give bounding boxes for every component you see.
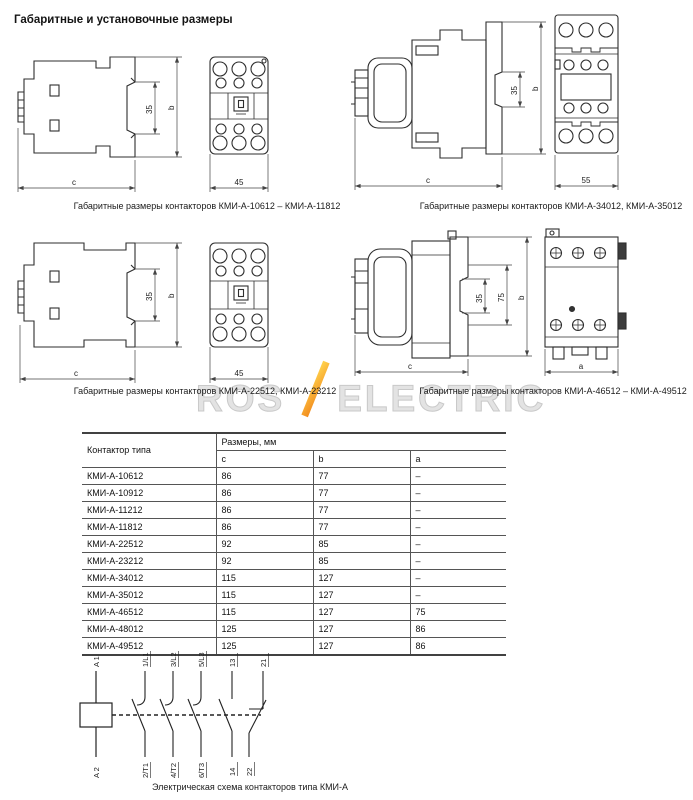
cell-c: 86 (216, 519, 313, 536)
col-header-c: c (216, 451, 313, 468)
drawing-22512-23212: 35 b c 45 (14, 233, 344, 400)
col-header-type: Контактор типа (82, 433, 216, 468)
dim-height: b (167, 293, 176, 298)
dimension-labels: 35 b c 45 (74, 292, 244, 378)
dim-height: b (517, 295, 526, 300)
drawing-caption: Габаритные размеры контакторов КМИ-А-465… (400, 386, 693, 396)
electrical-schematic: A 1 A 2 1/L1 3/L2 5/L3 13 21 2/Т1 4/Т2 6… (58, 645, 348, 785)
cell-c: 92 (216, 536, 313, 553)
cell-c: 86 (216, 502, 313, 519)
cell-c: 92 (216, 553, 313, 570)
label-aux-no-bottom: 14 (228, 768, 237, 776)
col-header-b: b (313, 451, 410, 468)
catalog-page: ROS ELECTRIC Габаритные и установочные р… (0, 0, 693, 800)
dim-depth: c (74, 369, 78, 378)
cell-a: 86 (410, 638, 506, 656)
schematic-caption: Электрическая схема контакторов типа КМИ… (98, 782, 402, 792)
cell-type: КМИ-А-11212 (82, 502, 216, 519)
dim-height: b (167, 105, 176, 110)
label-a1: A 1 (92, 656, 101, 667)
label-a2: A 2 (92, 767, 101, 778)
cell-c: 115 (216, 604, 313, 621)
drawing-10612-11812: 35 b c 45 (14, 48, 344, 206)
label-pole2-top: 3/L2 (169, 652, 178, 667)
dim-holes: 75 (497, 293, 506, 302)
label-pole1-top: 1/L1 (141, 652, 150, 667)
drawing-caption: Габаритные размеры контакторов КМИ-А-340… (398, 201, 693, 211)
cell-type: КМИ-А-48012 (82, 621, 216, 638)
label-pole3-top: 5/L3 (197, 652, 206, 667)
label-pole3-bottom: 6/Т3 (197, 763, 206, 778)
coil (80, 671, 112, 757)
dim-rail: 35 (145, 292, 154, 301)
dimensions (18, 57, 268, 192)
dim-width: 55 (582, 176, 591, 185)
drawing-46512-49512: 35 75 b c a (350, 225, 693, 400)
table-row: КМИ-А-109128677– (82, 485, 506, 502)
label-pole1-bottom: 2/Т1 (141, 763, 150, 778)
cell-type: КМИ-А-22512 (82, 536, 216, 553)
dim-depth: c (72, 178, 76, 187)
dim-depth: c (408, 362, 412, 371)
cell-type: КМИ-А-10912 (82, 485, 216, 502)
label-aux-nc-bottom: 22 (245, 768, 254, 776)
cell-type: КМИ-А-11812 (82, 519, 216, 536)
table-row: КМИ-А-4801212512786 (82, 621, 506, 638)
table-row: КМИ-А-35012115127– (82, 587, 506, 604)
cell-a: – (410, 485, 506, 502)
cell-b: 85 (313, 536, 410, 553)
cell-c: 86 (216, 485, 313, 502)
cell-type: КМИ-А-23212 (82, 553, 216, 570)
col-header-a: a (410, 451, 506, 468)
drawing-caption: Габаритные размеры контакторов КМИ-А-225… (52, 386, 358, 396)
aux-no-contact (219, 671, 232, 757)
cell-b: 127 (313, 587, 410, 604)
dim-width: 45 (235, 178, 244, 187)
cell-a: – (410, 468, 506, 485)
cell-b: 127 (313, 570, 410, 587)
cell-type: КМИ-А-10612 (82, 468, 216, 485)
table-row: КМИ-А-232129285– (82, 553, 506, 570)
side-view (351, 231, 468, 358)
cell-b: 77 (313, 502, 410, 519)
drawing-34012-35012: 35 b c 55 (350, 8, 693, 203)
cell-b: 85 (313, 553, 410, 570)
dimensions (20, 243, 268, 383)
dim-depth: c (426, 176, 430, 185)
cell-b: 77 (313, 468, 410, 485)
label-pole2-bottom: 4/Т2 (169, 763, 178, 778)
cell-c: 86 (216, 468, 313, 485)
cell-type: КМИ-А-35012 (82, 587, 216, 604)
front-view (210, 57, 268, 154)
label-aux-no-top: 13 (228, 659, 237, 667)
drawing-caption: Габаритные размеры контакторов КМИ-А-106… (54, 201, 360, 211)
cell-a: – (410, 536, 506, 553)
cell-a: 75 (410, 604, 506, 621)
cell-a: 86 (410, 621, 506, 638)
dim-rail: 35 (510, 86, 519, 95)
cell-a: – (410, 570, 506, 587)
cell-b: 77 (313, 519, 410, 536)
cell-c: 115 (216, 587, 313, 604)
cell-b: 77 (313, 485, 410, 502)
cell-type: КМИ-А-34012 (82, 570, 216, 587)
col-header-sizes: Размеры, мм (216, 433, 506, 451)
aux-nc-contact (249, 671, 266, 757)
side-view (351, 22, 502, 158)
page-title: Габаритные и установочные размеры (14, 14, 233, 26)
front-view (545, 229, 626, 359)
front-view (210, 243, 268, 347)
cell-c: 115 (216, 570, 313, 587)
dim-rail: 35 (145, 105, 154, 114)
dim-height: b (531, 86, 540, 91)
cell-c: 125 (216, 621, 313, 638)
dim-rail: 35 (475, 294, 484, 303)
label-aux-nc-top: 21 (259, 659, 268, 667)
table-row: КМИ-А-34012115127– (82, 570, 506, 587)
table-row: КМИ-А-112128677– (82, 502, 506, 519)
table-row: КМИ-А-225129285– (82, 536, 506, 553)
cell-a: – (410, 587, 506, 604)
table-row: КМИ-А-4651211512775 (82, 604, 506, 621)
side-view (18, 243, 135, 347)
cell-a: – (410, 519, 506, 536)
cell-b: 127 (313, 604, 410, 621)
dim-width: 45 (235, 369, 244, 378)
dimensions-table: Контактор типа Размеры, мм c b a КМИ-А-1… (82, 432, 506, 656)
cell-a: – (410, 502, 506, 519)
front-view (555, 15, 618, 153)
cell-a: – (410, 553, 506, 570)
table-header-row: Контактор типа Размеры, мм (82, 433, 506, 451)
cell-type: КМИ-А-46512 (82, 604, 216, 621)
table-row: КМИ-А-118128677– (82, 519, 506, 536)
dim-width: a (579, 362, 584, 371)
cell-b: 127 (313, 621, 410, 638)
main-poles (132, 671, 201, 757)
side-view (18, 57, 135, 157)
table-row: КМИ-А-106128677– (82, 468, 506, 485)
